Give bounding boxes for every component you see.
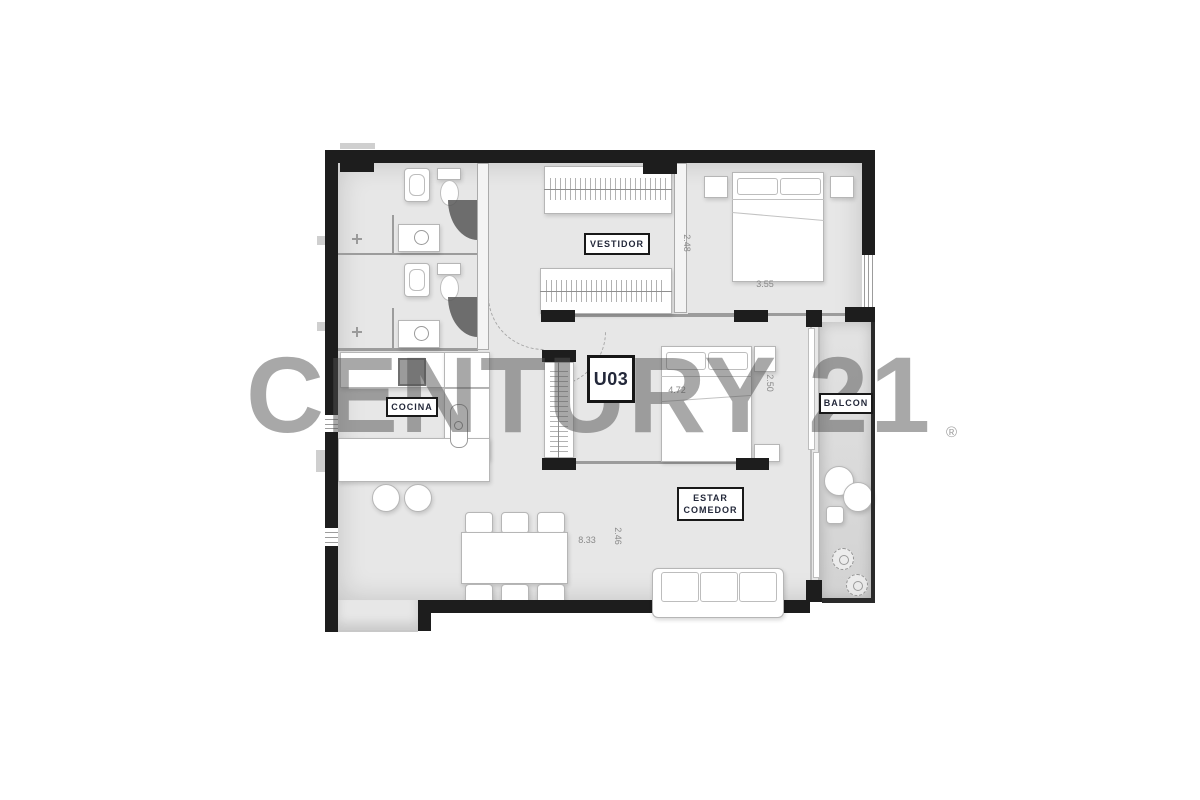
sliding-door-panel (808, 328, 815, 450)
wall-bathroom-partition (392, 215, 394, 253)
wall-right-upper (862, 163, 875, 255)
balcony-corner-bottom (806, 580, 822, 602)
pillow (708, 352, 748, 370)
faucet-icon (356, 327, 358, 337)
wall-cap (845, 307, 875, 322)
wall-cap (542, 350, 576, 362)
shower-drain (414, 326, 429, 341)
chair-icon (465, 512, 493, 534)
wall-top (325, 150, 875, 163)
chair-icon (537, 512, 565, 534)
toilet-icon (437, 168, 461, 180)
balcony-rail-bottom (822, 598, 875, 603)
exterior-tick (316, 450, 325, 472)
sink-basin (409, 269, 425, 291)
wardrobe-rail (558, 362, 559, 458)
nightstand-icon (830, 176, 854, 198)
sofa-cushion (661, 572, 699, 602)
registered-trademark-icon: ® (946, 424, 957, 441)
balcony-chair-icon (843, 482, 873, 512)
notch-edge-line (338, 630, 418, 632)
pier-top-center (643, 163, 677, 174)
blanket-line (661, 376, 752, 377)
pillow (666, 352, 706, 370)
nightstand-icon (704, 176, 728, 198)
room-label-vestidor: VESTIDOR (584, 233, 650, 255)
wardrobe-rail (544, 189, 672, 190)
room-label-cocina: COCINA (386, 397, 438, 417)
wall-bath-kitchen-divider (338, 348, 478, 351)
wall-cap (736, 458, 769, 470)
room-label-balcon: BALCON (819, 393, 873, 414)
kitchen-faucet-icon (454, 421, 463, 430)
floor-plan: 2.48 3.55 4.72 2.50 8.33 2.46 VESTIDOR C… (0, 0, 1200, 800)
kitchen-island (338, 438, 490, 482)
wall-bathroom-divider (338, 253, 478, 255)
dim-plan-width: 8.33 (572, 535, 602, 545)
faucet-icon (356, 234, 358, 244)
sink-basin (409, 174, 425, 196)
balcony-rail-right (871, 322, 875, 603)
sofa-cushion (700, 572, 738, 602)
dim-bedroom2-depth: 2.50 (765, 368, 775, 398)
dim-living-width: 4.72 (662, 385, 692, 395)
stove-icon (398, 358, 426, 386)
chair-icon (501, 512, 529, 534)
wardrobe-rail (540, 291, 672, 292)
toilet-icon (437, 263, 461, 275)
wardrobe-hangers (550, 368, 568, 452)
exterior-tick (317, 322, 325, 331)
dim-vestidor-depth: 2.48 (682, 228, 692, 258)
plant-icon (832, 548, 854, 570)
floor-entry-notch (338, 600, 418, 631)
shower-drain (414, 230, 429, 245)
stool-icon (404, 484, 432, 512)
pier-top-left (340, 163, 374, 172)
wall-cap (542, 458, 576, 470)
stool-icon (372, 484, 400, 512)
balcony-table-icon (826, 506, 844, 524)
balcony-corner-top (806, 310, 822, 327)
unit-label: U03 (587, 355, 635, 403)
wall-cap (541, 310, 575, 322)
wall-cap (734, 310, 768, 322)
exterior-tick (340, 143, 375, 149)
window-left-1 (325, 415, 338, 432)
window-right-bedroom (862, 255, 875, 307)
plant-icon (846, 574, 868, 596)
dim-living-depth: 2.46 (613, 521, 623, 551)
window-left-2 (325, 528, 338, 546)
dim-bedroom-width: 3.55 (750, 279, 780, 289)
sofa-cushion (739, 572, 777, 602)
wall-left (325, 163, 338, 632)
wall-bathrooms-right (477, 163, 489, 350)
room-label-estar-comedor: ESTAR COMEDOR (677, 487, 744, 521)
pillow (780, 178, 821, 195)
pillow (737, 178, 778, 195)
exterior-tick (317, 236, 325, 245)
blanket-line (732, 199, 824, 200)
wall-bottom-step (418, 600, 431, 631)
kitchen-cabinet (444, 352, 490, 388)
sliding-door-panel (813, 452, 820, 578)
dining-table-icon (461, 532, 568, 584)
wall-bathroom-partition (392, 308, 394, 348)
